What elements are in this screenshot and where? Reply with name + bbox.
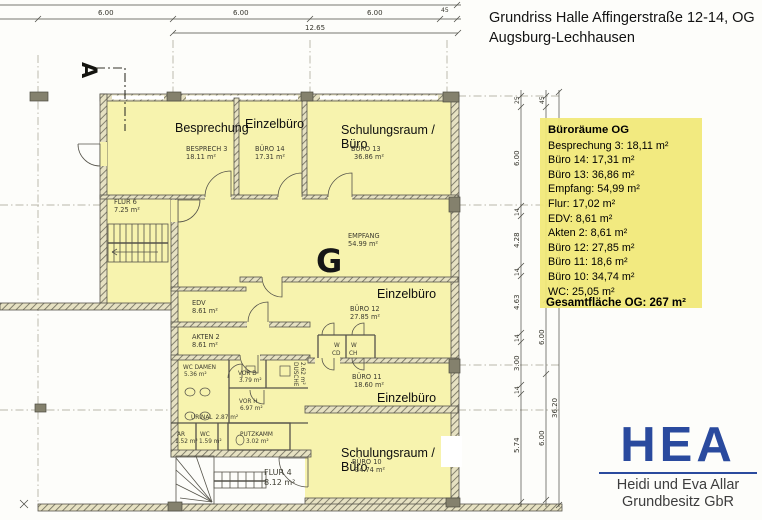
room-dusche-name: DUSCHE [292, 362, 298, 387]
legend-item: Büro 12: 27,85 m² [548, 241, 696, 256]
legend-item: Büro 10: 34,74 m² [548, 270, 696, 285]
dim-r2-45: 45 [539, 96, 546, 104]
room-urinal: URINAL2.87 m² [191, 414, 238, 421]
room-urinal-area: 2.87 m² [216, 414, 239, 421]
dim-r1-14d: 14 [514, 386, 521, 394]
room-buero12-name: BÜRO 12 [350, 304, 380, 313]
dim-r1-428: 4.28 [513, 232, 521, 248]
dim-r2-600a: 6.00 [538, 329, 546, 345]
legend-item: Büro 14: 17,31 m² [548, 153, 696, 168]
room-akten2-area: 8.61 m² [192, 341, 218, 349]
logo-rule [599, 472, 757, 474]
drawing-title-line2: Augsburg-Lechhausen [489, 28, 755, 48]
legend-item: Flur: 17,02 m² [548, 197, 696, 212]
logo-company-line: Grundbesitz GbR [597, 494, 759, 510]
total-area: Gesamtfläche OG: 267 m² [546, 297, 686, 309]
dim-overall-3620: 36.20 [551, 398, 559, 418]
company-logo: HEA Heidi und Eva Allar Grundbesitz GbR [597, 420, 759, 510]
grid-letter-g: G [316, 242, 342, 280]
room-area-legend: Büroräume OG Besprechung 3: 18,11 m² Bür… [540, 118, 702, 308]
room-ar-area: 1.52 m² [175, 438, 198, 445]
room-putzkamm-name: PUTZKAMM [240, 432, 273, 438]
legend-item: Büro 13: 36,86 m² [548, 168, 696, 183]
room-ar-name: AR [177, 432, 185, 438]
room-putzkamm-area: 3.02 m² [246, 438, 269, 445]
label-besprechung: Besprechung [175, 121, 249, 135]
legend-title: Büroräume OG [548, 123, 696, 138]
room-flur4-area: 8.12 m² [264, 478, 295, 487]
dim-r1-600a: 6.00 [513, 150, 521, 166]
dim-r1-463: 4.63 [513, 294, 521, 310]
dim-r1-25: 25 [514, 96, 521, 104]
room-wc-name: WC [200, 432, 210, 438]
vestibule-w1: W [334, 343, 340, 349]
legend-item: Akten 2: 8,61 m² [548, 226, 696, 241]
dim-top-1265: 12.65 [305, 24, 325, 32]
logo-acronym: HEA [597, 420, 759, 471]
room-besprech3-name: BESPRECH 3 [186, 145, 227, 153]
room-vorh-area: 6.97 m² [240, 405, 263, 412]
room-vorh-name: VOR H [239, 399, 258, 405]
room-besprech3-area: 18.11 m² [186, 153, 216, 161]
dim-top-2: 6.00 [233, 9, 249, 17]
room-wcdamen-area: 5.36 m² [184, 371, 207, 378]
room-flur6-name: FLUR 6 [114, 198, 137, 206]
dim-top-1: 6.00 [98, 9, 114, 17]
room-wc-area: 1.59 m² [199, 438, 222, 445]
room-buero12-area: 27.85 m² [350, 313, 380, 321]
room-buero10-name: BÜRO 10 [352, 457, 382, 466]
room-buero11-name: BÜRO 11 [352, 372, 382, 381]
room-buero14-area: 17.31 m² [255, 153, 285, 161]
logo-owner-line: Heidi und Eva Allar [597, 477, 759, 493]
room-buero14-name: BÜRO 14 [255, 144, 285, 153]
room-urinal-name: URINAL [191, 415, 213, 421]
room-akten2-name: AKTEN 2 [192, 333, 220, 341]
room-dusche-area: 2.62 m² [299, 362, 306, 385]
dim-top-3: 6.00 [367, 9, 383, 17]
floor-plan-page: A G Besprechung Einzelbüro Schulungsraum… [0, 0, 762, 520]
label-schulungsraum-1a: Schulungsraum / [341, 123, 435, 137]
room-buero10-area: 34.74 m² [355, 466, 385, 474]
dim-r1-14c: 14 [514, 334, 521, 342]
room-vord-area: 3.79 m² [239, 377, 262, 384]
section-marker-label: A [77, 62, 101, 79]
legend-item: Büro 11: 18,6 m² [548, 255, 696, 270]
room-empfang-name: EMPFANG [348, 232, 380, 240]
label-einzelbuero-1: Einzelbüro [245, 117, 304, 131]
room-flur6-area: 7.25 m² [114, 206, 140, 214]
legend-item: EDV: 8,61 m² [548, 212, 696, 227]
dim-r1-300: 3.00 [513, 355, 521, 371]
dim-r1-14b: 14 [514, 268, 521, 276]
vestibule-ch: CH [349, 351, 357, 357]
dim-r2-600b: 6.00 [538, 430, 546, 446]
room-empfang-area: 54.99 m² [348, 240, 378, 248]
room-buero13-name: BÜRO 13 [351, 144, 381, 153]
room-vord-name: VOR D [238, 371, 257, 377]
stair-lower [176, 456, 266, 504]
room-edv-name: EDV [192, 299, 206, 307]
label-einzelbuero-2: Einzelbüro [377, 287, 436, 301]
room-flur4-name: FLUR 4 [264, 468, 292, 477]
room-edv-area: 8.61 m² [192, 307, 218, 315]
white-patch [441, 436, 462, 467]
drawing-title-line1: Grundriss Halle Affingerstraße 12-14, OG [489, 8, 755, 28]
legend-item: Besprechung 3: 18,11 m² [548, 139, 696, 154]
dim-r1-14a: 14 [514, 208, 521, 216]
legend-item: Empfang: 54,99 m² [548, 182, 696, 197]
room-buero11-area: 18.60 m² [354, 381, 384, 389]
vestibule-w2: W [351, 343, 357, 349]
drawing-title: Grundriss Halle Affingerstraße 12-14, OG… [489, 8, 755, 49]
vestibule-cd: CD [332, 351, 341, 357]
dim-r1-574: 5.74 [513, 437, 521, 453]
room-wcdamen-name: WC DAMEN [183, 365, 216, 371]
dim-top-45: 45 [441, 7, 449, 14]
label-einzelbuero-3: Einzelbüro [377, 391, 436, 405]
room-buero13-area: 36.86 m² [354, 153, 384, 161]
